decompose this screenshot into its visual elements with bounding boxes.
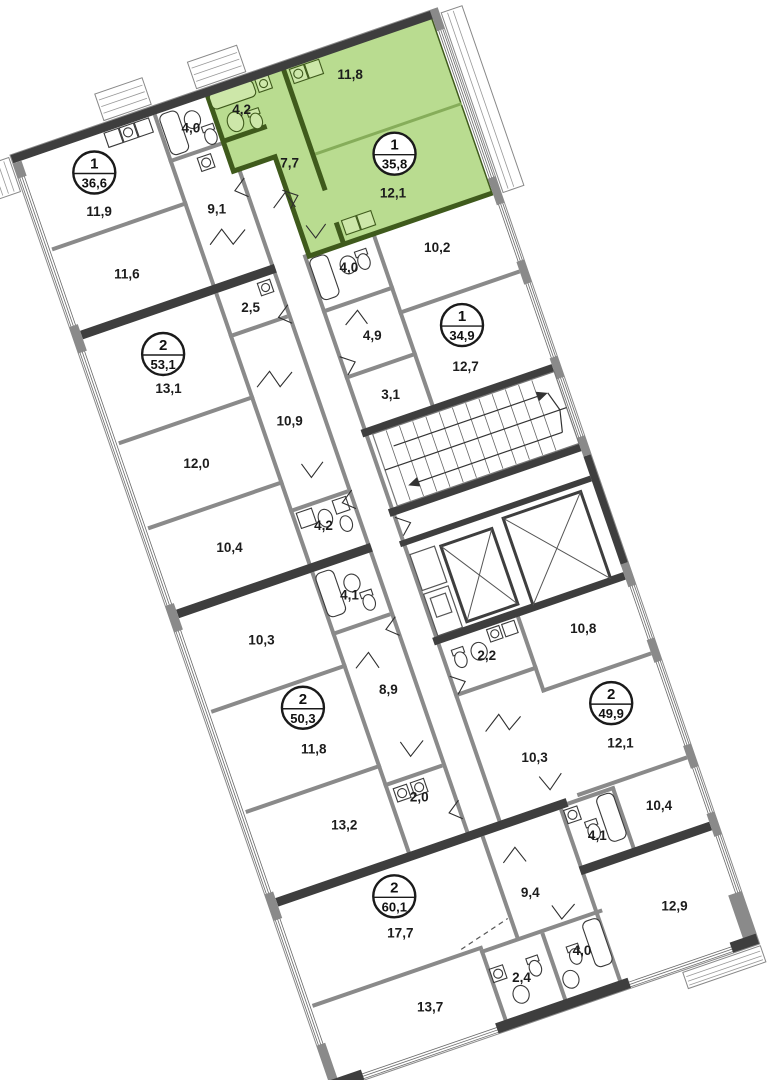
room-area-label: 10,4 — [216, 540, 243, 555]
svg-text:2: 2 — [390, 879, 398, 896]
room-area-label: 11,9 — [86, 204, 112, 219]
svg-text:50,3: 50,3 — [290, 711, 315, 726]
room-area-label: 10,2 — [424, 240, 450, 255]
room-area-label: 4,1 — [340, 587, 359, 602]
svg-text:1: 1 — [458, 308, 466, 325]
room-area-label: 10,3 — [248, 633, 275, 648]
room-area-label: 10,3 — [521, 750, 548, 765]
unit-badge: 1 35,8 — [374, 133, 416, 175]
room-area-label: 2,0 — [410, 790, 429, 805]
room-area-label: 2,4 — [512, 970, 531, 985]
svg-text:36,6: 36,6 — [82, 176, 107, 191]
room-area-label: 4,2 — [314, 518, 333, 533]
room-area-label: 12,7 — [452, 359, 478, 374]
room-area-label: 13,7 — [417, 1000, 443, 1015]
unit-badge: 2 60,1 — [373, 875, 415, 917]
svg-text:49,9: 49,9 — [599, 706, 624, 721]
room-area-label: 10,9 — [277, 413, 303, 428]
room-area-label: 4,0 — [339, 260, 358, 275]
svg-text:1: 1 — [390, 137, 398, 154]
unit-badge: 2 50,3 — [282, 687, 324, 729]
room-area-label: 10,8 — [570, 621, 597, 636]
room-area-label: 8,9 — [379, 682, 398, 697]
room-area-label: 13,1 — [155, 381, 182, 396]
unit-badge: 1 34,9 — [441, 304, 483, 346]
room-area-label: 7,7 — [280, 155, 299, 170]
svg-text:60,1: 60,1 — [382, 899, 407, 914]
room-area-label: 9,1 — [207, 202, 226, 217]
room-area-label: 11,8 — [337, 67, 363, 82]
room-area-label: 11,6 — [114, 266, 140, 281]
svg-text:2: 2 — [607, 686, 615, 703]
building: 4,2 11,8 7,7 12,1 1 35,8 4,0 11,9 9,1 11… — [0, 0, 767, 1080]
room-area-label: 9,4 — [521, 885, 540, 900]
floor-plan-canvas: 4,2 11,8 7,7 12,1 1 35,8 4,0 11,9 9,1 11… — [0, 0, 767, 1080]
svg-text:1: 1 — [90, 156, 98, 173]
room-area-label: 17,7 — [387, 925, 413, 940]
room-area-label: 4,2 — [232, 102, 251, 117]
room-area-label: 4,1 — [588, 828, 607, 843]
room-area-label: 4,0 — [182, 121, 201, 136]
room-area-label: 4,9 — [363, 328, 382, 343]
svg-text:53,1: 53,1 — [150, 357, 175, 372]
room-area-label: 2,2 — [477, 648, 496, 663]
room-area-label: 12,1 — [380, 185, 407, 200]
floor-plan-svg: 4,2 11,8 7,7 12,1 1 35,8 4,0 11,9 9,1 11… — [0, 0, 767, 1080]
unit-badge: 2 53,1 — [142, 333, 184, 375]
room-area-label: 2,5 — [241, 300, 260, 315]
room-area-label: 10,4 — [646, 798, 673, 813]
svg-text:2: 2 — [159, 337, 167, 354]
room-area-label: 3,1 — [381, 387, 400, 402]
room-area-label: 11,8 — [301, 741, 327, 756]
room-area-label: 12,1 — [607, 735, 634, 750]
room-area-label: 13,2 — [331, 818, 357, 833]
room-area-label: 4,0 — [573, 943, 592, 958]
room-area-label: 12,9 — [661, 899, 687, 914]
unit-badge: 1 36,6 — [73, 152, 115, 194]
svg-text:35,8: 35,8 — [382, 157, 407, 172]
room-area-label: 12,0 — [183, 456, 209, 471]
svg-text:34,9: 34,9 — [449, 328, 474, 343]
unit-badge: 2 49,9 — [590, 682, 632, 724]
svg-text:2: 2 — [299, 691, 307, 708]
